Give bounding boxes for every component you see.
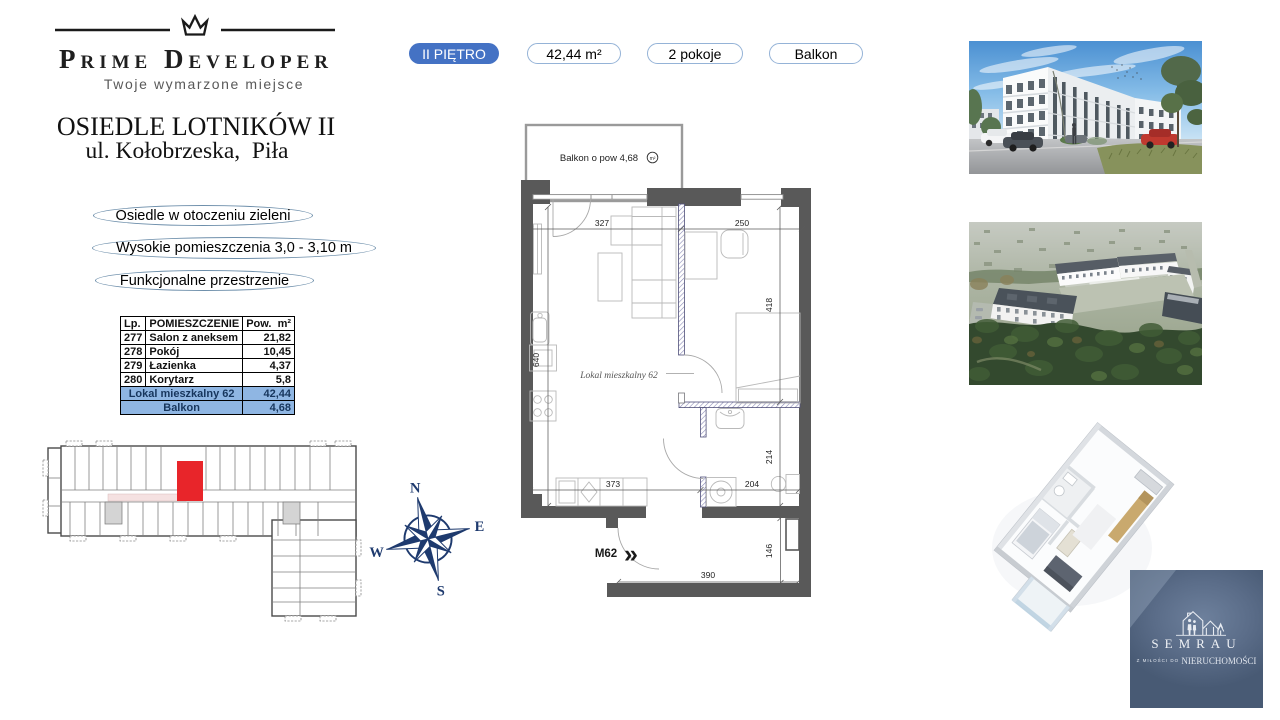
svg-text:418: 418 bbox=[764, 298, 774, 312]
svg-text:327: 327 bbox=[595, 218, 609, 228]
svg-text:»: » bbox=[624, 540, 638, 568]
svg-text:373: 373 bbox=[606, 479, 620, 489]
svg-text:640: 640 bbox=[531, 353, 541, 367]
svg-text:Balkon o pow 4,68: Balkon o pow 4,68 bbox=[560, 153, 638, 164]
svg-text:m²: m² bbox=[650, 156, 656, 162]
svg-text:E: E bbox=[475, 519, 485, 535]
svg-text:204: 204 bbox=[745, 479, 759, 489]
svg-text:146: 146 bbox=[764, 544, 774, 558]
svg-text:250: 250 bbox=[735, 218, 749, 228]
svg-text:W: W bbox=[369, 545, 384, 561]
svg-text:N: N bbox=[410, 481, 421, 497]
svg-text:Lokal mieszkalny 62: Lokal mieszkalny 62 bbox=[579, 371, 658, 381]
svg-text:S: S bbox=[437, 583, 445, 599]
svg-text:214: 214 bbox=[764, 450, 774, 464]
svg-text:M62: M62 bbox=[595, 548, 617, 560]
svg-text:390: 390 bbox=[701, 570, 715, 580]
